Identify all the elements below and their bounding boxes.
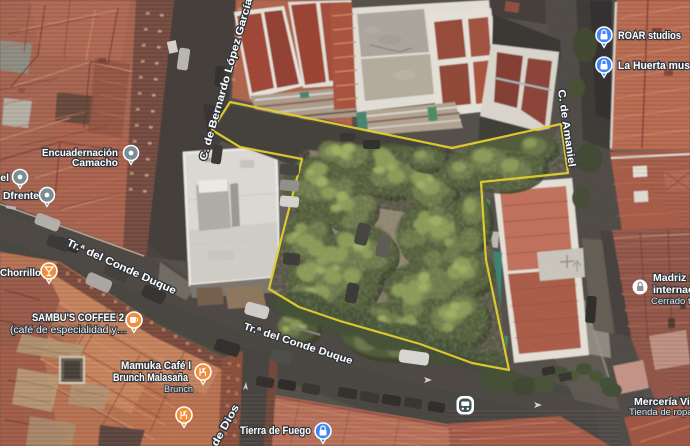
svg-text:La Huerta mus: La Huerta mus [618,60,690,72]
svg-text:(café de especialidad y…: (café de especialidad y… [10,324,127,336]
svg-text:Mamuka Café I: Mamuka Café I [121,360,191,372]
svg-text:el: el [0,172,9,184]
svg-text:Brunch: Brunch [164,384,193,395]
svg-text:ROAR studios: ROAR studios [618,30,681,42]
svg-text:Chorrillo: Chorrillo [0,267,41,279]
svg-text:Brunch Malasaña: Brunch Malasaña [113,372,189,384]
svg-text:SAMBU'S COFFEE 2: SAMBU'S COFFEE 2 [32,312,124,324]
svg-text:Dfrente: Dfrente [3,190,39,202]
svg-text:Tienda de ropa in: Tienda de ropa in [629,407,690,418]
svg-text:Cerrado te: Cerrado te [651,296,690,307]
svg-text:Camacho: Camacho [72,157,118,169]
svg-text:Madriz m: Madriz m [653,272,690,284]
svg-text:Tierra de Fuego: Tierra de Fuego [240,425,311,437]
svg-text:internac: internac [653,284,690,296]
